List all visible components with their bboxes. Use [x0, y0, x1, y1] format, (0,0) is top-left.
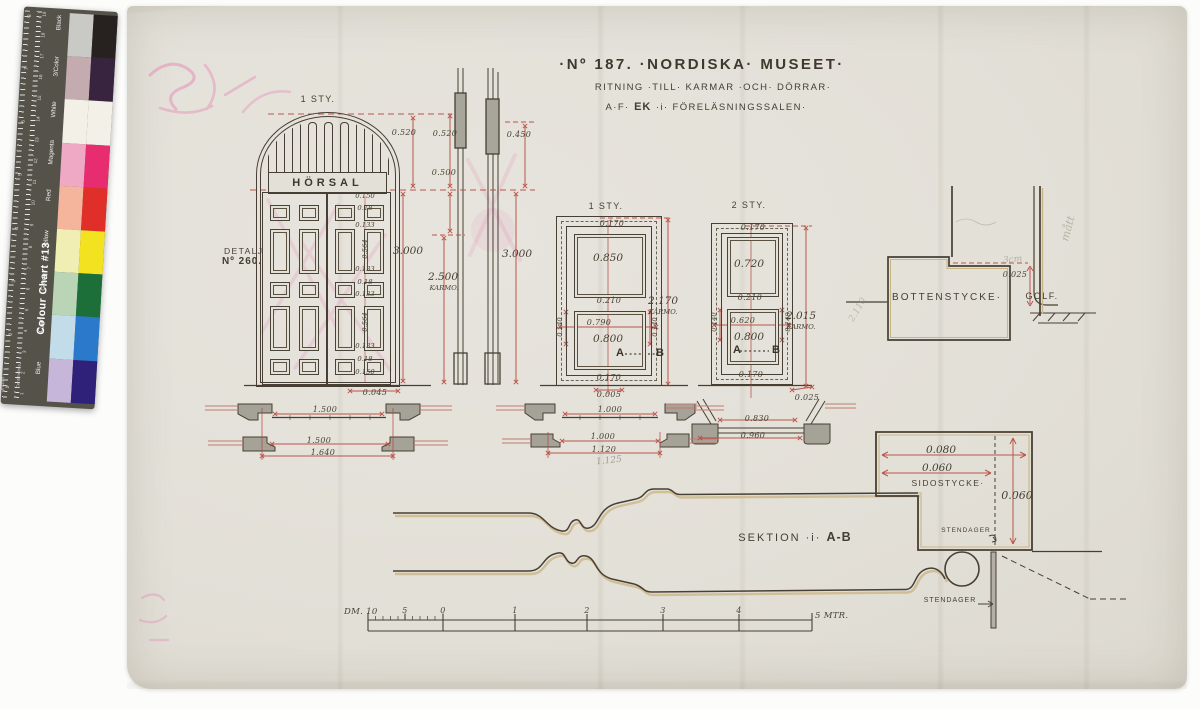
ruler-number: 10: [30, 201, 35, 206]
swatch-blue: [71, 359, 98, 404]
door1-dim-karm: 2.170: [648, 295, 678, 307]
double-door-elevation: HÖRSAL: [256, 112, 400, 387]
ruler-number: 6: [21, 120, 27, 123]
dim-col-3: 0.564: [361, 239, 369, 258]
door2-dim-top: 0.170: [741, 223, 765, 232]
row-label-magenta: Magenta: [47, 140, 55, 165]
dim-elev-bottom: 0.045: [363, 388, 387, 397]
ruler-number: 7: [27, 264, 32, 269]
scale-bar-drawing: [368, 613, 812, 631]
door2-section-b: B: [772, 344, 780, 356]
swatch-3color-tint: [65, 56, 92, 101]
elevation-count-label: 1 STY.: [301, 94, 336, 104]
door2-dim-floor: 0.025: [795, 393, 819, 402]
sidostycke-dim-w1: 0.080: [926, 444, 956, 456]
plan-mid-dim2: 1.000: [591, 432, 615, 441]
swatch-green-tint: [52, 272, 79, 317]
dim-col-5: 0.18: [357, 278, 372, 286]
transom-glazing-bars: [266, 119, 390, 175]
sektion-label: SEKTION ·i· A-B: [738, 528, 851, 546]
dim-side-mid: 0.500: [432, 168, 456, 177]
swatch-3color: [89, 58, 116, 103]
plan-mid-dim3: 1.120: [592, 445, 616, 454]
stendager-label-1: STENDAGER: [941, 527, 990, 534]
door2-karm-suffix: KARMO.: [786, 323, 815, 331]
plan-mid-dim1: 1.000: [598, 405, 622, 414]
ruler-number: 2: [8, 333, 14, 336]
door1-karm-suffix: KARMO.: [648, 308, 677, 316]
scale-tick-0: 0: [440, 606, 445, 615]
ruler-number: 4: [14, 226, 20, 229]
ruler-number: 9: [29, 222, 34, 227]
drawing-title: ·Nº 187. ·NORDISKA· MUSEET·: [559, 56, 844, 73]
swatch-magenta-tint: [60, 142, 87, 187]
plan-left-dim3: 1.640: [311, 448, 335, 457]
door1-dim-mid: 0.210: [597, 296, 621, 305]
door-leaf-left: [262, 192, 327, 385]
row-label-cyan: Cyan: [37, 317, 45, 332]
scale-tick-1: 1: [512, 606, 517, 615]
stendager-label-2: STENDAGER: [924, 597, 977, 604]
scale-tick-5dm: 5: [402, 606, 407, 615]
ruler-number: 1: [5, 386, 11, 389]
ruler-number: 4: [23, 327, 28, 332]
ruler-number: 19: [42, 11, 47, 16]
horsal-sign-text: HÖRSAL: [292, 177, 362, 189]
dim-side-karm: 2.500: [428, 271, 458, 283]
swatch-yellow-tint: [54, 229, 81, 274]
inches-caption: Inches: [0, 377, 5, 391]
ruler-number: 5: [24, 306, 29, 311]
door1-dim-top: 0.170: [600, 219, 624, 228]
door1-dim-side-l: 0.140: [556, 317, 564, 336]
sidostycke-dim-w2: 0.060: [922, 462, 952, 474]
door-elevation-2sty: [711, 223, 793, 385]
detail-ref-line1: DETALJ: [224, 246, 263, 256]
plan-right-dim2: 0.960: [741, 431, 765, 440]
scale-tick-4: 4: [736, 606, 741, 615]
row-label-white: White: [50, 101, 58, 117]
door1-dim-upper: 0.850: [593, 252, 623, 264]
ruler-number: 12: [33, 158, 38, 163]
scale-tick-3: 3: [660, 606, 665, 615]
swatch-red: [81, 187, 108, 232]
dim-side-top: 0.520: [433, 129, 457, 138]
plan-left-dim2: 1.500: [307, 436, 331, 445]
door2-section-a: A: [733, 344, 741, 356]
door1-section-b: B: [656, 347, 664, 359]
subtitle2-pre: A·F·: [606, 102, 630, 113]
dim-col-6: 0.133: [355, 290, 374, 298]
swatch-white-tint: [62, 99, 89, 144]
scanned-drawing-page: HÖRSAL: [0, 0, 1200, 709]
dim-arch-height: 0.520: [392, 128, 416, 137]
scale-tick-2: 2: [584, 606, 589, 615]
door2-dim-karm: 2.015: [786, 310, 816, 322]
dim-col-0: 0.150: [355, 192, 374, 200]
dim-side-karm-suffix: KARMO.: [429, 284, 458, 292]
door2-dim-lower-h: 0.800: [734, 331, 764, 343]
dim-col-9: 0.18: [357, 355, 372, 363]
swatch-blue-tint: [47, 358, 74, 403]
swatch-cyan: [73, 316, 100, 361]
ruler-number: 8: [27, 14, 33, 17]
door2-dim-side-l: 0.140: [710, 312, 718, 331]
swatch-black-tint: [67, 13, 94, 58]
door2-count-label: 2 STY.: [732, 200, 767, 210]
sektion-profile: [393, 489, 945, 592]
horsal-sign: HÖRSAL: [268, 172, 387, 194]
ruler-number: 1: [19, 390, 24, 395]
row-label-blue: Blue: [35, 361, 43, 374]
dim-col-7: 0.564: [361, 312, 369, 331]
subtitle2-material: EK: [634, 101, 651, 113]
sektion-label-pre: SEKTION ·i·: [738, 532, 826, 544]
ruler-number: 15: [37, 95, 42, 100]
ruler-number: 7: [24, 67, 30, 70]
scale-m-label: 5 MTR.: [815, 611, 848, 621]
dim-col-4: 0.133: [355, 265, 374, 273]
door1-dim-bottom: 0.170: [597, 373, 621, 382]
ruler-number: 6: [25, 285, 30, 290]
row-label-black: Black: [55, 15, 63, 31]
detail-ref-line2: Nº 260.: [222, 256, 262, 267]
plan-left-dim1: 1.500: [313, 405, 337, 414]
ruler-number: 14: [35, 116, 40, 121]
sektion-label-bold: A-B: [826, 530, 851, 544]
sidostycke-label: SIDOSTYCKE·: [911, 478, 984, 488]
sektion-profile-shadow: [395, 492, 947, 595]
door1-section-a: A: [616, 347, 624, 359]
plan-right-dim1: 0.830: [745, 414, 769, 423]
swatch-yellow: [78, 230, 105, 275]
ruler-number: 5: [17, 173, 23, 176]
dim-side-total: 3.000: [502, 248, 532, 260]
swatch-white: [86, 101, 113, 146]
door1-dim-lower-w: 0.790: [587, 318, 611, 327]
swatch-cyan-tint: [49, 315, 76, 360]
door1-count-label: 1 STY.: [589, 201, 624, 211]
row-label-green: Green: [40, 273, 48, 291]
door1-dim-side-r: 0.140: [651, 317, 659, 336]
door2-dim-upper: 0.720: [734, 258, 764, 270]
drawing-subtitle-2: A·F· EK ·i· FÖRELÄSNINGSSALEN·: [606, 97, 807, 115]
ruler-number: 13: [34, 137, 39, 142]
door2-dim-mid: 0.210: [738, 293, 762, 302]
drawing-subtitle: RITNING ·TILL· KARMAR ·OCH· DÖRRAR·: [595, 82, 831, 93]
ruler-number: 3: [22, 348, 27, 353]
subtitle2-post: ·i· FÖRELÄSNINGSSALEN·: [656, 102, 807, 113]
dim-col-2: 0.133: [355, 221, 374, 229]
ruler-number: 18: [40, 32, 45, 37]
bottenstycke-dim: 0.025: [1003, 270, 1027, 279]
swatch-magenta: [84, 144, 111, 189]
floor-label: GOLF.: [1025, 291, 1058, 301]
row-label-red: Red: [45, 189, 53, 201]
door1-dim-floor: 0.005: [597, 390, 621, 399]
dim-col-10: 0.150: [355, 368, 374, 376]
row-label-3color: 3/Color: [53, 56, 61, 77]
scale-dm-label: DM. 10: [344, 607, 378, 617]
ruler-number: 3: [11, 279, 17, 282]
door2-dim-lower-w: 0.620: [731, 316, 755, 325]
ruler-number: 16: [38, 74, 43, 79]
door2-dim-bottom: 0.170: [739, 370, 763, 379]
dim-side-top-right: 0.450: [507, 130, 531, 139]
sidostycke-drawing: [876, 432, 1130, 628]
row-label-yellow: Yellow: [42, 230, 50, 248]
bottenstycke-pencil-note: 3cm: [1003, 254, 1023, 266]
ruler-number: 8: [28, 243, 33, 248]
bottenstycke-label: BOTTENSTYCKE·: [892, 292, 1002, 303]
ruler-number: 11: [32, 180, 37, 185]
swatch-black: [91, 15, 118, 60]
ruler-number: 17: [39, 53, 44, 58]
swatch-red-tint: [57, 186, 84, 231]
dim-col-1: 0.18: [357, 204, 372, 212]
door1-dim-lower-h: 0.800: [593, 333, 623, 345]
swatch-green: [76, 273, 103, 318]
dim-col-8: 0.133: [355, 342, 374, 350]
sidostycke-dim-h: 0.060: [1001, 489, 1033, 502]
dim-door-total-height: 3.000: [393, 245, 423, 257]
